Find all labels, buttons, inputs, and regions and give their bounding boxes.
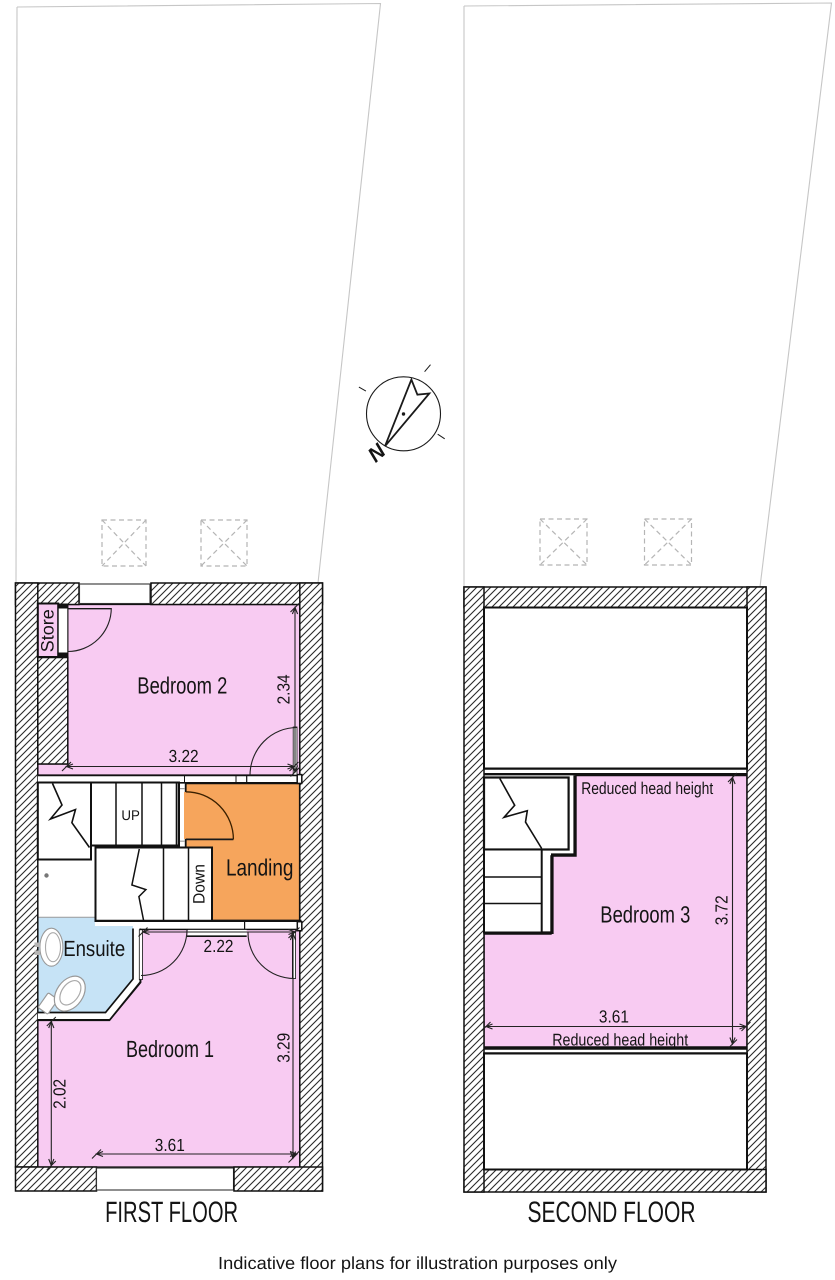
svg-text:3.72: 3.72: [711, 895, 731, 925]
svg-text:2.34: 2.34: [274, 674, 294, 704]
svg-text:Reduced head height: Reduced head height: [552, 1030, 688, 1049]
svg-text:Landing: Landing: [226, 855, 294, 881]
svg-text:FIRST FLOOR: FIRST FLOOR: [105, 1196, 238, 1229]
svg-text:3.22: 3.22: [169, 746, 199, 766]
svg-text:Bedroom 2: Bedroom 2: [137, 673, 227, 699]
svg-text:Indicative floor plans for ill: Indicative floor plans for illustration …: [218, 1253, 617, 1273]
svg-text:Bedroom 1: Bedroom 1: [126, 1036, 214, 1062]
svg-text:UP: UP: [121, 807, 140, 823]
svg-text:3.61: 3.61: [599, 1006, 629, 1026]
svg-text:Down: Down: [190, 864, 208, 904]
svg-text:Store: Store: [37, 609, 57, 652]
svg-text:3.29: 3.29: [273, 1033, 293, 1063]
svg-text:Ensuite: Ensuite: [63, 936, 125, 961]
svg-text:3.61: 3.61: [155, 1135, 185, 1155]
svg-text:2.02: 2.02: [49, 1079, 69, 1109]
svg-text:Reduced head height: Reduced head height: [581, 779, 713, 798]
svg-text:2.22: 2.22: [204, 936, 234, 956]
svg-text:Bedroom 3: Bedroom 3: [600, 902, 690, 928]
svg-text:SECOND FLOOR: SECOND FLOOR: [528, 1196, 696, 1229]
